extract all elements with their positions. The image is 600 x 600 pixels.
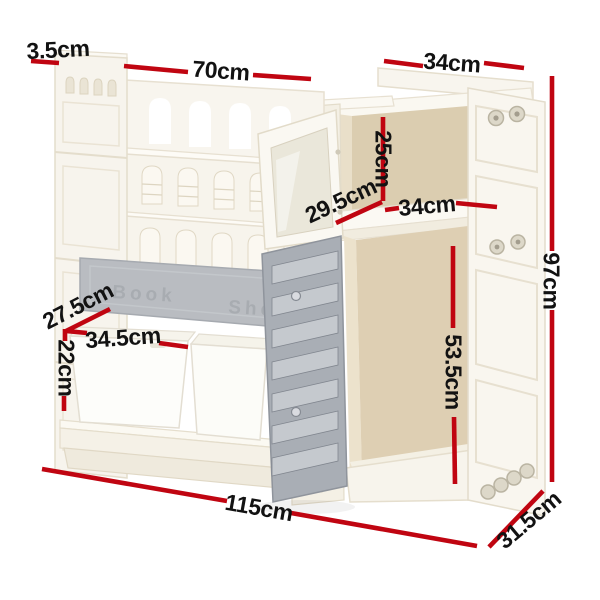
dim-line-lower-height-bottom [454,417,455,484]
dim-label-bookshelf-width: 70cm [192,58,251,85]
dim-label-side-thickness: 3.5cm [26,37,90,63]
dim-label-lower-compartment-height: 53.5cm [442,334,465,410]
dim-label-upper-compartment-height: 25cm [372,130,395,187]
storage-bin-right [191,334,274,440]
dim-line-total-width-right [291,513,477,546]
door-screw [292,292,301,301]
dim-label-total-height: 97cm [540,252,563,309]
dim-line-bookshelf-width-left [124,66,188,72]
dim-line-cabinet-top-left [384,61,423,66]
hinge-screw [335,149,340,154]
product-dimension-diagram: Book Shelf [0,0,600,600]
open-clear-door [258,110,343,249]
bar-text-book: Book [112,282,177,307]
door-screw [292,408,301,417]
bin-body [191,344,267,440]
dim-label-bin-compartment-height: 22cm [55,339,78,396]
right-side-panel [468,88,545,516]
dim-line-bookshelf-width-right [253,75,311,79]
dim-label-cabinet-top-width: 34cm [423,50,482,77]
dim-line-cabinet-top-right [484,63,524,68]
dim-label-shelf-width: 34cm [397,192,456,220]
dim-label-bin-width: 34.5cm [84,324,161,352]
right-cabinet [331,68,545,516]
dim-line-shelf-width-left [385,208,399,210]
